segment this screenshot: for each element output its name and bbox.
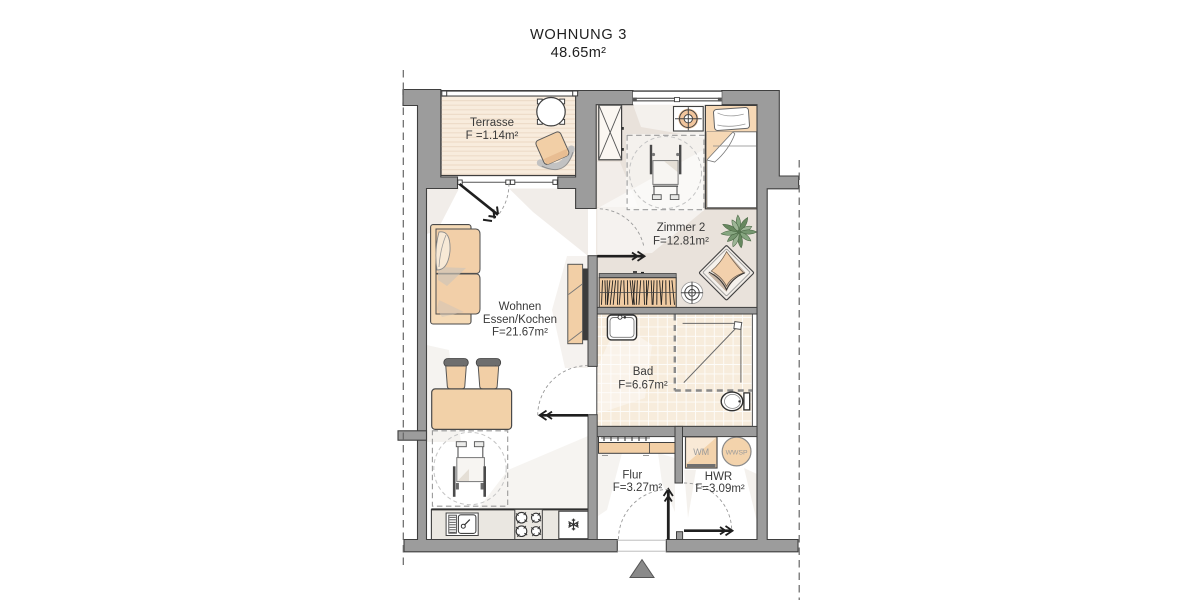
svg-text:WOHNUNG 3: WOHNUNG 3 [530, 27, 627, 43]
svg-text:F=6.67m²: F=6.67m² [618, 379, 668, 391]
svg-text:Flur: Flur [622, 470, 642, 482]
svg-text:WM: WM [693, 447, 709, 457]
svg-text:F=12.81m²: F=12.81m² [653, 235, 709, 247]
svg-text:Terrasse: Terrasse [470, 117, 514, 129]
svg-text:Essen/Kochen: Essen/Kochen [483, 314, 557, 326]
svg-text:F=3.27m²: F=3.27m² [613, 482, 663, 494]
svg-text:F=21.67m²: F=21.67m² [492, 327, 548, 339]
svg-text:F=3.09m²: F=3.09m² [695, 483, 745, 495]
svg-text:Zimmer 2: Zimmer 2 [657, 222, 706, 234]
svg-text:48.65m²: 48.65m² [551, 45, 607, 61]
svg-text:Bad: Bad [633, 366, 653, 378]
svg-text:WWSP: WWSP [726, 450, 748, 457]
svg-text:HWR: HWR [705, 471, 732, 483]
svg-text:Wohnen: Wohnen [499, 301, 542, 313]
svg-text:F =1.14m²: F =1.14m² [466, 130, 519, 142]
